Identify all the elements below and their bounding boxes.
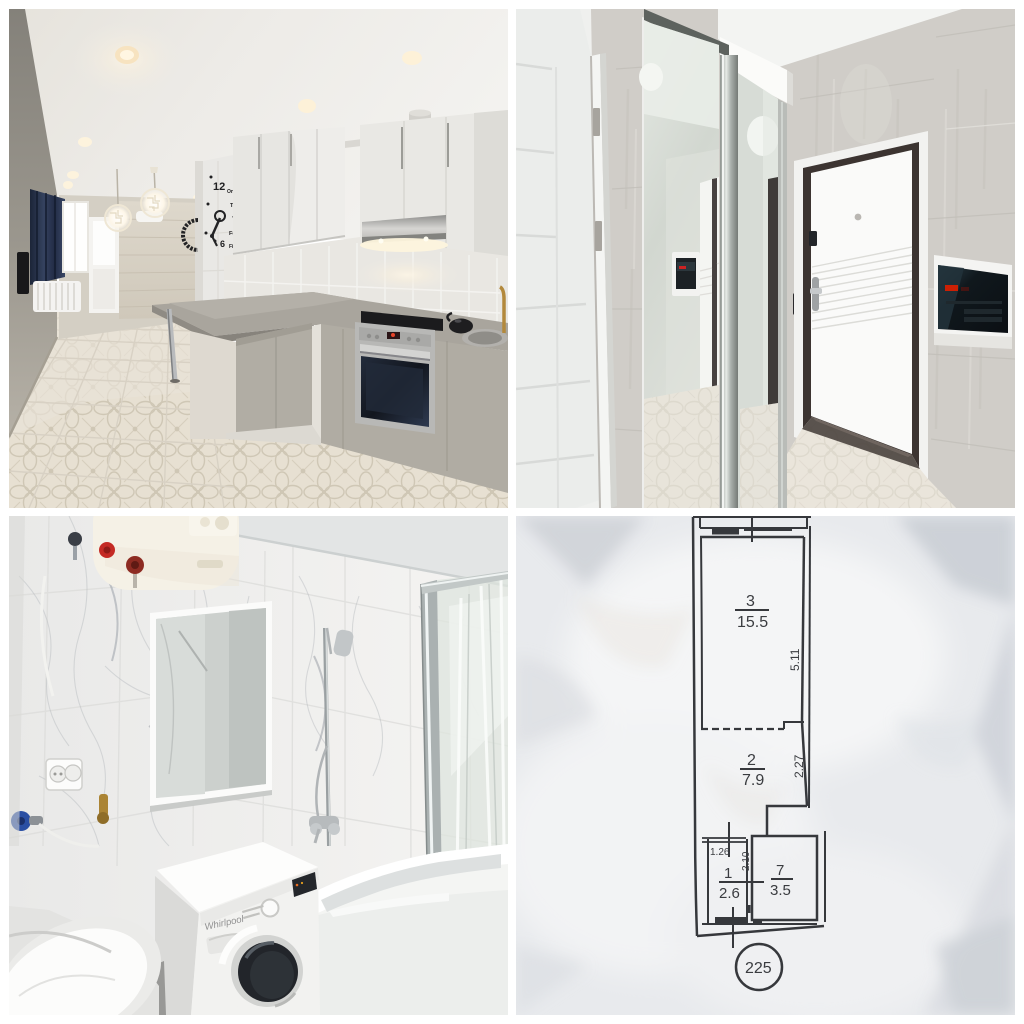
svg-text:3: 3 — [746, 593, 755, 610]
svg-text:6: 6 — [220, 239, 225, 249]
svg-text:5.11: 5.11 — [788, 648, 802, 671]
svg-text:2.27: 2.27 — [792, 754, 806, 778]
svg-text:3.5: 3.5 — [770, 882, 791, 899]
svg-text:2.10: 2.10 — [741, 851, 752, 871]
svg-text:1: 1 — [724, 865, 732, 882]
svg-text:2.6: 2.6 — [719, 885, 740, 902]
svg-text:15.5: 15.5 — [737, 614, 768, 631]
svg-text:2: 2 — [747, 752, 756, 769]
svg-text:1.26: 1.26 — [710, 847, 730, 858]
svg-text:225: 225 — [745, 960, 772, 977]
svg-text:12: 12 — [213, 181, 225, 193]
svg-text:7: 7 — [776, 862, 784, 879]
svg-text:7.9: 7.9 — [742, 772, 764, 789]
